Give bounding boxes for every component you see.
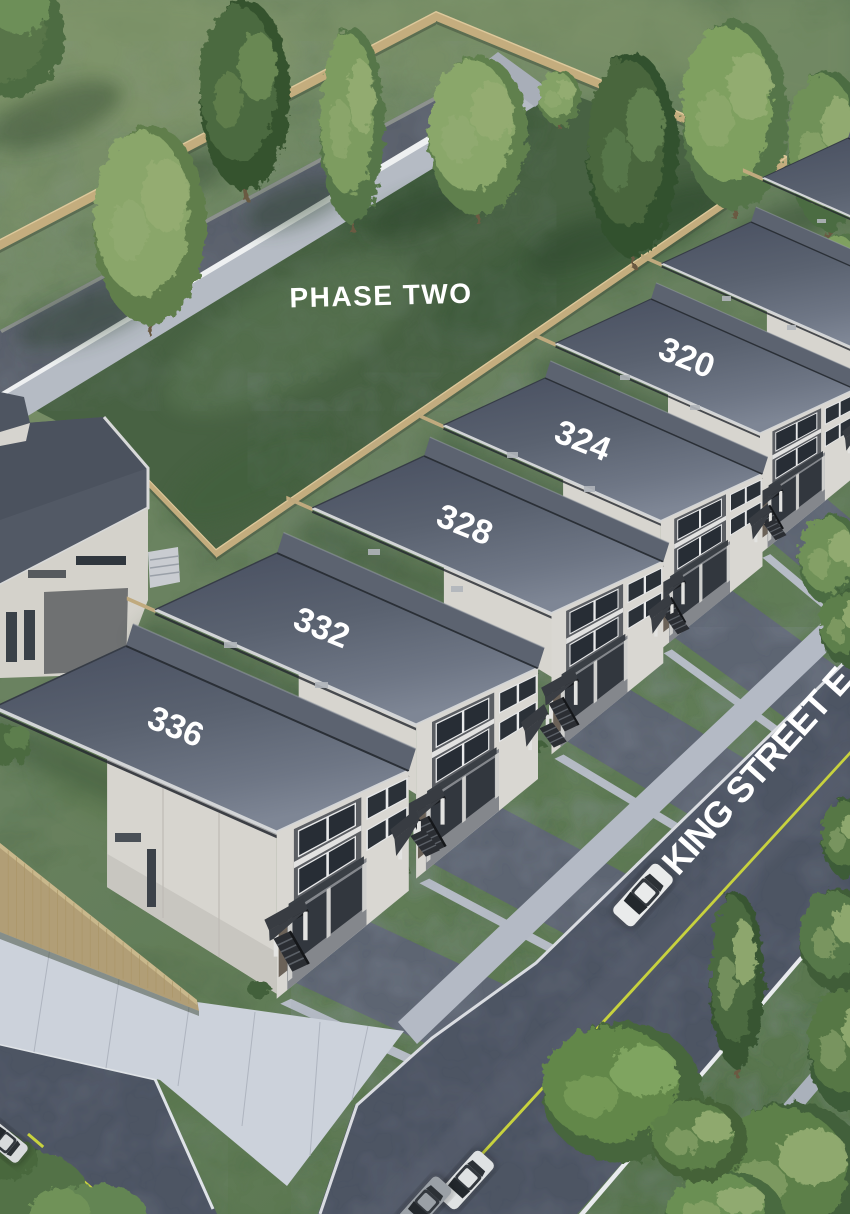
svg-text:PHASE TWO: PHASE TWO — [289, 278, 473, 314]
